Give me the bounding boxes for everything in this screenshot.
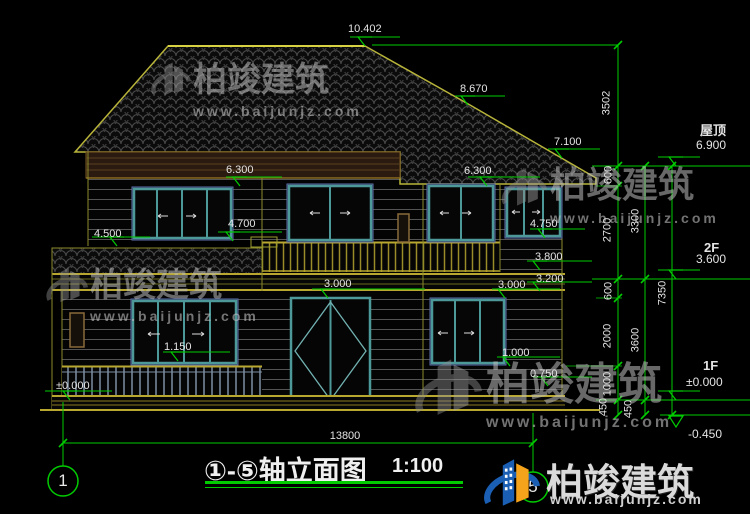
dim-450a: 450 [599, 398, 610, 416]
dim-600a: 600 [604, 166, 615, 184]
cad-elevation-drawing: 10.402 8.670 7.100 6.300 6.300 4.500 4.7… [0, 0, 750, 514]
slider-2f-center-right [427, 184, 495, 242]
slider-2f-center-left [287, 184, 373, 242]
dim-3300: 3300 [631, 209, 642, 233]
watermark-left: 柏竣建筑 www.baijunjz.com [90, 258, 259, 324]
level-roof-elev: 6.900 [696, 139, 726, 151]
elevation-label-balcony-floor: 4.700 [228, 219, 256, 230]
watermark-top-left: 柏竣建筑 www.baijunjz.com [193, 52, 362, 119]
brand-logo-icon [478, 453, 540, 511]
drawing-scale: 1:100 [392, 455, 443, 478]
dim-7350: 7350 [658, 281, 669, 305]
elevation-label-win2f-right-sill: 4.750 [530, 219, 558, 230]
dim-3600: 3600 [631, 328, 642, 352]
elevation-label-wing-eave: 7.100 [554, 137, 582, 148]
wall-vent-1f [70, 313, 84, 347]
dim-1000: 1000 [603, 372, 614, 396]
watermark-site: www.baijunjz.com [486, 414, 672, 432]
entry-door [291, 298, 370, 402]
window-2f-left [132, 187, 233, 240]
elevation-label-ridge: 10.402 [348, 24, 382, 35]
balcony-railing [262, 242, 500, 272]
elevation-label-win1f-right-top: 3.000 [498, 280, 526, 291]
elevation-label-railing-top: 3.800 [535, 252, 563, 263]
level-roof-label: 屋顶 [700, 124, 726, 137]
elevation-label-win2f-left-top: 6.300 [226, 165, 254, 176]
elevation-label-ground-zero: ±0.000 [56, 381, 90, 392]
watermark-brand: 柏竣建筑 [90, 258, 259, 306]
title-underline-thin [205, 487, 463, 488]
level-ground-elev: -0.450 [688, 428, 722, 440]
brand-logo-site: www.baijunjz.com [550, 491, 703, 507]
elevation-label-porch-floor: 0.750 [530, 369, 558, 380]
elevation-label-win1f-right-sill: 1.000 [502, 348, 530, 359]
elevation-geometry [0, 0, 750, 514]
elevation-label-ledge-left: 4.500 [94, 229, 122, 240]
dim-450b: 450 [624, 400, 635, 418]
level-2f-elev: 3.600 [696, 253, 726, 265]
watermark-site: www.baijunjz.com [90, 308, 259, 324]
dim-overall-width: 13800 [330, 431, 361, 442]
dim-600b: 600 [604, 282, 615, 300]
elevation-label-slope: 8.670 [460, 84, 488, 95]
watermark-brand: 柏竣建筑 [550, 156, 719, 208]
watermark-site: www.baijunjz.com [193, 103, 362, 119]
wall-vent-2f [398, 214, 409, 242]
elevation-label-win2f-right-top: 6.300 [464, 166, 492, 177]
elevation-label-door-top: 3.000 [324, 279, 352, 290]
watermark-bottom-center: 柏竣建筑 www.baijunjz.com [486, 348, 672, 432]
level-1f-elev: ±0.000 [686, 376, 723, 388]
dim-2000: 2000 [603, 324, 614, 348]
level-1f-label: 1F [703, 359, 718, 372]
elevation-label-win1f-left-sill: 1.150 [164, 342, 192, 353]
watermark-brand: 柏竣建筑 [193, 52, 362, 101]
title-underline-thick [205, 481, 463, 484]
dim-2700: 2700 [603, 218, 614, 242]
axis-number-1: 1 [58, 471, 67, 491]
elevation-label-slab-bottom: 3.200 [536, 274, 564, 285]
dim-3502: 3502 [602, 91, 613, 115]
